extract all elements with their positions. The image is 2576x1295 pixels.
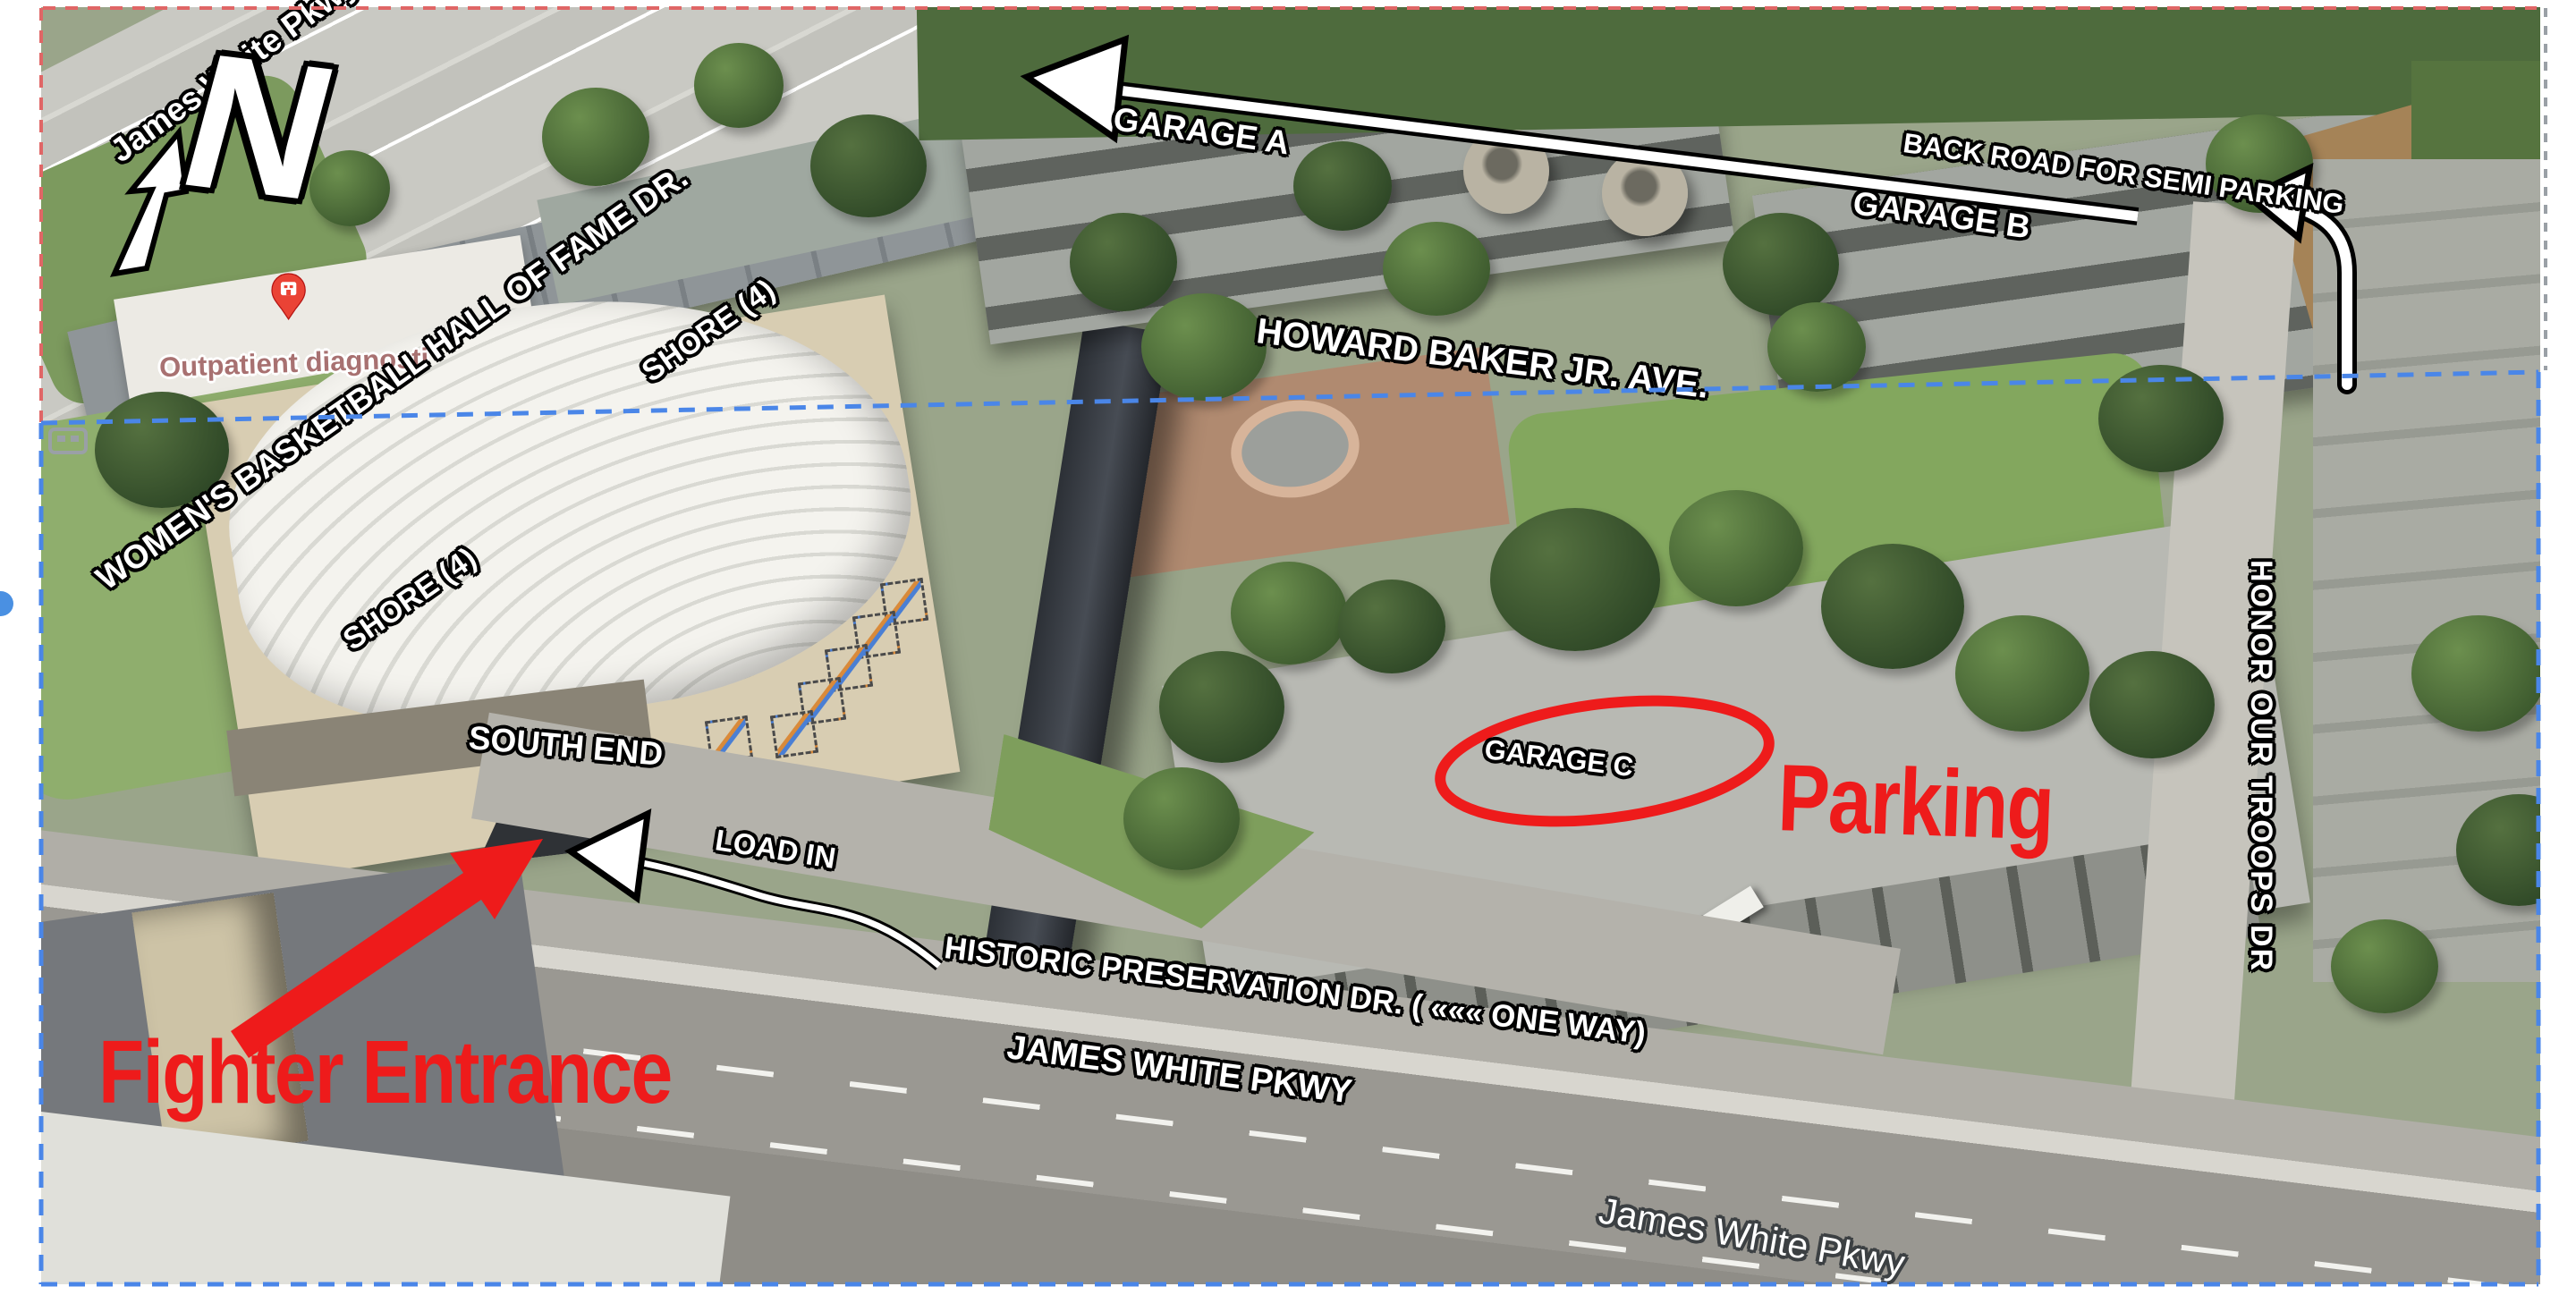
roof-dashed-square — [770, 710, 818, 758]
aerial-cylinder-tower — [1602, 150, 1688, 236]
tree — [2089, 651, 2215, 758]
tree — [1123, 767, 1240, 870]
annotation-honor-our-troops: HONOR OUR TROOPS DR — [2243, 560, 2278, 972]
tree — [810, 114, 927, 217]
tree — [1293, 141, 1392, 231]
annotation-fighter-entrance: Fighter Entrance — [98, 1021, 672, 1124]
tree — [1338, 580, 1445, 673]
document-page: James White Pkwy N Outpatient diagnosti … — [0, 0, 2576, 1295]
selection-resize-handle[interactable] — [0, 591, 13, 616]
tree — [1767, 302, 1866, 392]
tree — [1669, 490, 1803, 606]
tree — [694, 43, 784, 128]
annotation-parking: Parking — [1776, 744, 2055, 862]
tree — [309, 150, 390, 226]
tree — [2098, 365, 2224, 472]
tree — [1159, 651, 1284, 763]
tree — [2411, 615, 2540, 732]
tree — [1490, 508, 1660, 651]
tree — [1231, 562, 1347, 664]
tree — [1383, 222, 1490, 316]
tree — [1141, 293, 1267, 401]
aerial-cylinder-tower — [1463, 128, 1549, 214]
tree — [1070, 213, 1177, 311]
tree — [1821, 544, 1964, 669]
tree — [542, 88, 649, 186]
tree — [1723, 213, 1839, 316]
tree — [1955, 615, 2089, 732]
tree — [2331, 919, 2438, 1013]
